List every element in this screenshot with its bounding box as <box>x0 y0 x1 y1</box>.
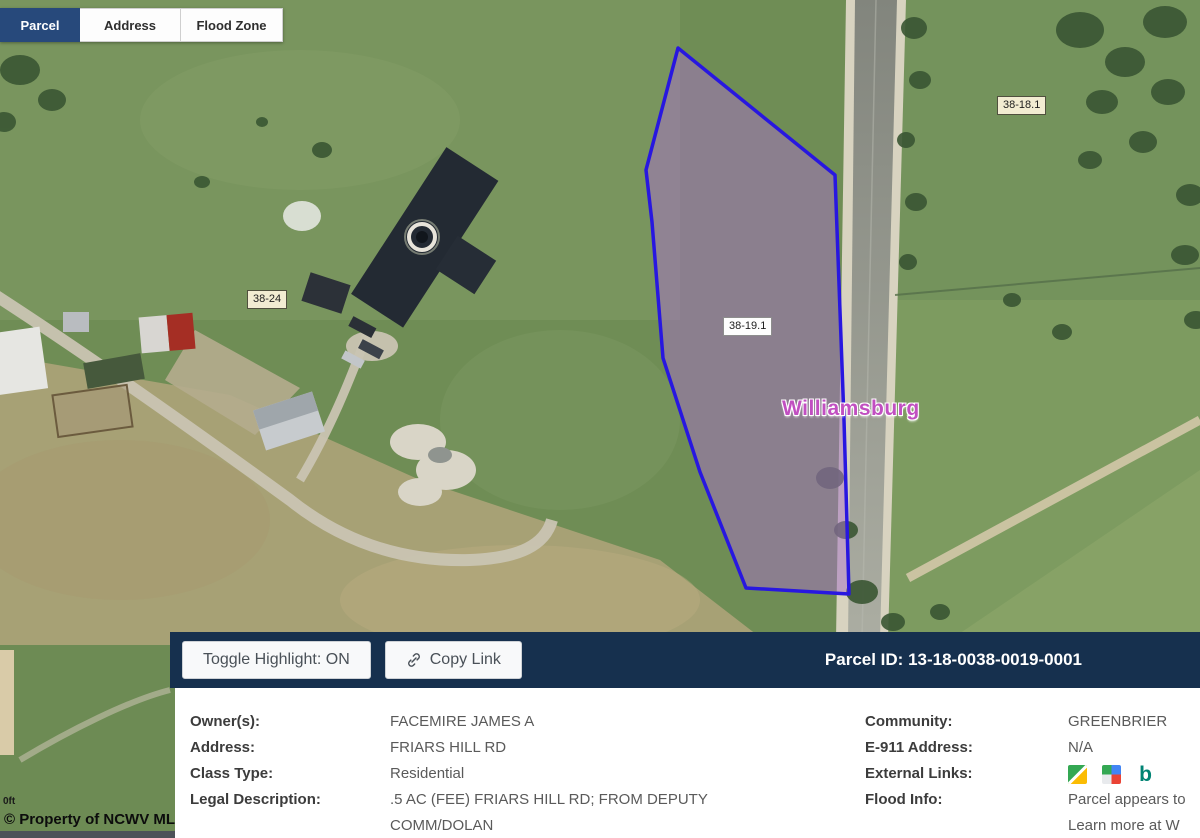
link-icon <box>406 652 422 668</box>
toggle-highlight-button[interactable]: Toggle Highlight: ON <box>182 641 371 679</box>
external-links-label: External Links: <box>865 761 1068 787</box>
tab-address[interactable]: Address <box>80 8 181 42</box>
detail-row-owner: Owner(s): FACEMIRE JAMES A <box>190 709 865 735</box>
parcel-label-38-24: 38-24 <box>247 290 287 309</box>
bing-maps-icon[interactable]: b <box>1136 765 1155 784</box>
detail-row-legal-description: Legal Description: .5 AC (FEE) FRIARS HI… <box>190 787 865 838</box>
flood-info-value: Parcel appears to Learn more at W <box>1068 787 1200 838</box>
google-maps-directions-icon[interactable] <box>1068 765 1087 784</box>
legal-description-value: .5 AC (FEE) FRIARS HILL RD; FROM DEPUTY … <box>390 787 740 838</box>
parcel-label-38-18-1: 38-18.1 <box>997 96 1046 115</box>
parcel-details-panel: Owner(s): FACEMIRE JAMES A Address: FRIA… <box>175 688 1200 838</box>
parcel-id-text: Parcel ID: 13-18-0038-0019-0001 <box>825 650 1082 670</box>
class-type-value: Residential <box>390 761 464 787</box>
copyright-watermark: © Property of NCWV MLS <box>4 811 185 828</box>
search-mode-tabs: Parcel Address Flood Zone <box>0 8 283 42</box>
detail-row-external-links: External Links: b <box>865 761 1200 787</box>
legal-description-label: Legal Description: <box>190 787 390 838</box>
window-bottom-edge <box>0 831 175 838</box>
flood-info-line-1: Parcel appears to <box>1068 787 1200 813</box>
owner-label: Owner(s): <box>190 709 390 735</box>
parcel-label-38-19-1: 38-19.1 <box>723 317 772 336</box>
corral <box>52 385 132 437</box>
detail-row-class-type: Class Type: Residential <box>190 761 865 787</box>
class-type-label: Class Type: <box>190 761 390 787</box>
flood-info-line-2: Learn more at W <box>1068 813 1200 838</box>
parcel-toolbar: Toggle Highlight: ON Copy Link Parcel ID… <box>170 632 1200 688</box>
details-left-column: Owner(s): FACEMIRE JAMES A Address: FRIA… <box>190 709 865 838</box>
toggle-highlight-label: Toggle Highlight: ON <box>203 651 350 669</box>
map-scale-indicator: 0ft <box>3 796 15 807</box>
google-maps-icon[interactable] <box>1102 765 1121 784</box>
detail-row-flood-info: Flood Info: Parcel appears to Learn more… <box>865 787 1200 838</box>
owner-value: FACEMIRE JAMES A <box>390 709 534 735</box>
tab-flood-zone[interactable]: Flood Zone <box>181 8 283 42</box>
detail-row-community: Community: GREENBRIER <box>865 709 1200 735</box>
address-value: FRIARS HILL RD <box>390 735 506 761</box>
e911-address-value: N/A <box>1068 735 1200 761</box>
external-links-icons: b <box>1068 761 1155 787</box>
community-value: GREENBRIER <box>1068 709 1200 735</box>
detail-row-e911-address: E-911 Address: N/A <box>865 735 1200 761</box>
tab-parcel[interactable]: Parcel <box>0 8 80 42</box>
details-right-column: Community: GREENBRIER E-911 Address: N/A… <box>865 709 1200 838</box>
community-label: Community: <box>865 709 1068 735</box>
place-name-label: Williamsburg <box>782 397 920 421</box>
e911-address-label: E-911 Address: <box>865 735 1068 761</box>
copy-link-button[interactable]: Copy Link <box>385 641 522 679</box>
address-label: Address: <box>190 735 390 761</box>
copy-link-label: Copy Link <box>430 651 501 669</box>
detail-row-address: Address: FRIARS HILL RD <box>190 735 865 761</box>
flood-info-label: Flood Info: <box>865 787 1068 838</box>
